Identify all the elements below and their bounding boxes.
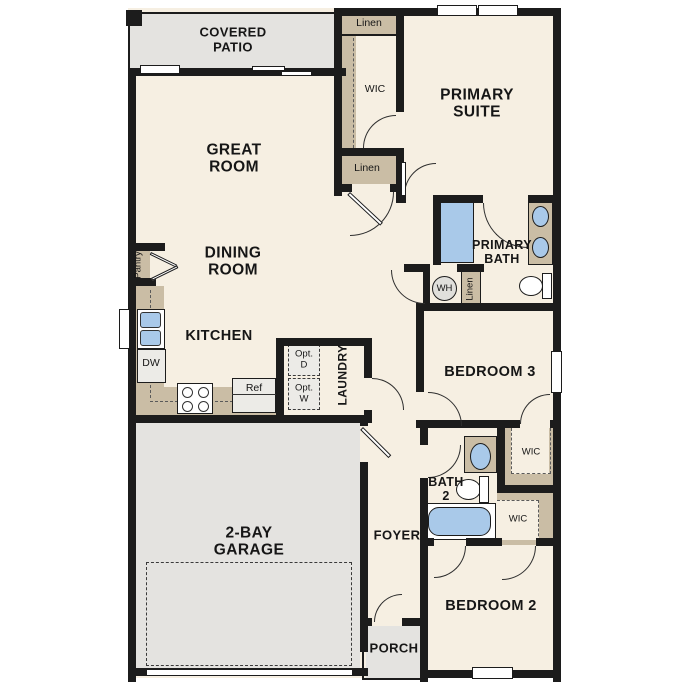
wall — [420, 618, 428, 682]
wall — [420, 478, 428, 546]
linen-top-line — [342, 34, 396, 36]
primary-suite-window-2 — [478, 5, 518, 16]
label-primary-suite: PRIMARY SUITE — [440, 87, 514, 122]
primary-suite-window-1 — [437, 5, 477, 16]
patio-edge-top — [128, 12, 334, 14]
bath2-sink — [470, 443, 491, 470]
garage-stall-dashed — [146, 562, 352, 666]
wall — [360, 462, 368, 618]
door-leaf-primary-suite — [401, 162, 406, 196]
wall — [396, 8, 404, 112]
primary-toilet-bowl — [519, 276, 543, 296]
wall — [497, 428, 505, 493]
wall — [497, 485, 561, 493]
primary-sink-1 — [532, 206, 549, 227]
wall — [128, 415, 368, 423]
wall — [466, 538, 502, 546]
label-wic-bed3: WIC — [522, 448, 540, 459]
label-garage: 2-BAY GARAGE — [214, 525, 284, 560]
bathtub — [428, 507, 491, 536]
wall — [420, 538, 434, 546]
label-dishwasher: DW — [142, 358, 160, 370]
floor-plan: WH — [0, 0, 687, 687]
shower — [440, 201, 474, 263]
label-laundry: LAUNDRY — [336, 344, 349, 405]
porch-edge-bottom — [362, 678, 424, 680]
kitchen-sink-basin-2 — [140, 330, 161, 346]
label-great-room: GREAT ROOM — [206, 142, 261, 177]
patio-corner-post — [126, 10, 142, 26]
wall — [528, 195, 561, 203]
label-opt-washer: Opt. W — [295, 383, 313, 404]
wall — [550, 420, 561, 428]
primary-sink-2 — [532, 237, 549, 258]
label-linen-top: Linen — [356, 18, 382, 30]
wall — [536, 538, 561, 546]
wall — [416, 303, 561, 311]
wall — [360, 415, 368, 426]
wall — [553, 8, 561, 682]
kitchen-sink-basin-1 — [140, 312, 161, 328]
patio-window — [140, 65, 180, 74]
wic-shelf-dash — [342, 38, 354, 148]
wall — [420, 428, 428, 445]
wall — [396, 195, 406, 203]
label-covered-patio: COVERED PATIO — [199, 25, 266, 54]
bedroom2-window — [472, 667, 513, 679]
label-foyer: FOYER — [374, 529, 421, 544]
water-heater-label: WH — [437, 283, 453, 294]
water-heater: WH — [432, 276, 457, 301]
burner-4 — [198, 401, 209, 412]
label-porch: PORCH — [370, 642, 419, 657]
primary-toilet-tank — [542, 273, 552, 299]
wall — [128, 68, 136, 682]
label-wic-bed2: WIC — [509, 515, 527, 526]
kitchen-window — [119, 309, 130, 349]
wall — [364, 338, 372, 378]
label-pantry: Pantry — [134, 251, 145, 278]
label-refrigerator: Ref — [246, 383, 262, 395]
bath2-toilet-tank — [479, 476, 489, 503]
wall — [438, 195, 483, 203]
label-linen-mid: Linen — [354, 163, 380, 175]
bedroom3-window — [551, 351, 562, 393]
burner-3 — [182, 401, 193, 412]
wall — [276, 338, 372, 346]
wall — [416, 303, 424, 392]
label-kitchen: KITCHEN — [185, 328, 252, 344]
wall — [334, 148, 396, 156]
label-linen-small: Linen — [466, 277, 477, 300]
wall — [360, 618, 368, 652]
label-bedroom3: BEDROOM 3 — [444, 364, 535, 380]
label-primary-bath: PRIMARY BATH — [472, 238, 532, 266]
wall — [334, 8, 342, 196]
burner-1 — [182, 387, 193, 398]
label-opt-dryer: Opt. D — [295, 349, 313, 370]
wall — [433, 195, 441, 265]
wall — [276, 338, 284, 423]
wall — [128, 243, 165, 251]
patio-slider-panel-2 — [281, 71, 312, 76]
label-wic-corridor: WIC — [365, 84, 385, 96]
porch-edge-left — [362, 650, 364, 680]
label-dining-room: DINING ROOM — [205, 245, 262, 280]
label-bath2: BATH 2 — [428, 475, 463, 503]
label-bedroom2: BEDROOM 2 — [445, 598, 536, 614]
burner-2 — [198, 387, 209, 398]
garage-door — [146, 669, 353, 676]
